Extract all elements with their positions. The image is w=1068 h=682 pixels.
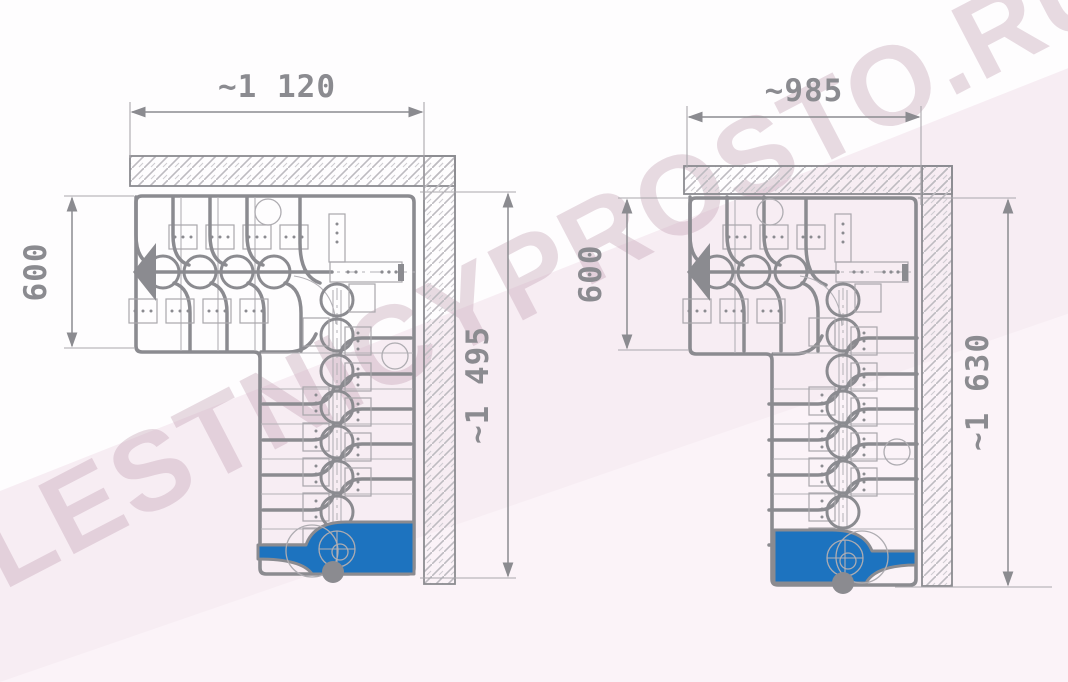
top-wall bbox=[130, 156, 455, 186]
baluster-ghost-circle bbox=[757, 199, 783, 225]
long-bolt-plate bbox=[330, 262, 402, 282]
tread-module bbox=[166, 197, 234, 351]
corner-plate bbox=[835, 214, 851, 262]
top-wall bbox=[684, 166, 952, 194]
staircase-plan-right: ~985 600 ~1 630 bbox=[573, 73, 1052, 594]
start-post-dot bbox=[322, 561, 344, 583]
right-wall bbox=[922, 166, 952, 586]
dimension-label-top-right: ~985 bbox=[765, 73, 844, 109]
plate-end-cap bbox=[902, 264, 908, 281]
dimension-label-side-left: 600 bbox=[18, 243, 54, 302]
corner-tread-curve bbox=[300, 197, 320, 283]
right-wall bbox=[424, 156, 455, 584]
dimension-label-height-right: ~1 630 bbox=[960, 333, 996, 451]
baluster-ghost-circle bbox=[255, 199, 281, 225]
plate-end-cap bbox=[398, 264, 404, 281]
tread-module bbox=[720, 197, 788, 351]
tread-module bbox=[240, 197, 308, 351]
staircase-plans-svg: ~1 120 600 ~1 495 bbox=[0, 0, 1068, 682]
dimension-side: 600 bbox=[573, 198, 688, 350]
tread-module bbox=[203, 197, 271, 351]
staircase-plan-left: ~1 120 600 ~1 495 bbox=[18, 69, 516, 584]
corner-tread-curve bbox=[261, 334, 316, 352]
corner-plate bbox=[329, 214, 345, 262]
dimension-height: ~1 630 bbox=[895, 198, 1052, 587]
staircase-drawing-canvas: LESTNICYPROSTO.RU bbox=[0, 0, 1068, 682]
dimension-label-side-right: 600 bbox=[573, 245, 609, 304]
tread-module bbox=[757, 197, 825, 351]
baluster-ghost-circle bbox=[382, 343, 408, 369]
dimension-side: 600 bbox=[18, 196, 134, 348]
dimension-label-top-left: ~1 120 bbox=[218, 69, 336, 105]
start-post-dot bbox=[832, 572, 854, 594]
dimension-label-height-left: ~1 495 bbox=[460, 326, 496, 444]
